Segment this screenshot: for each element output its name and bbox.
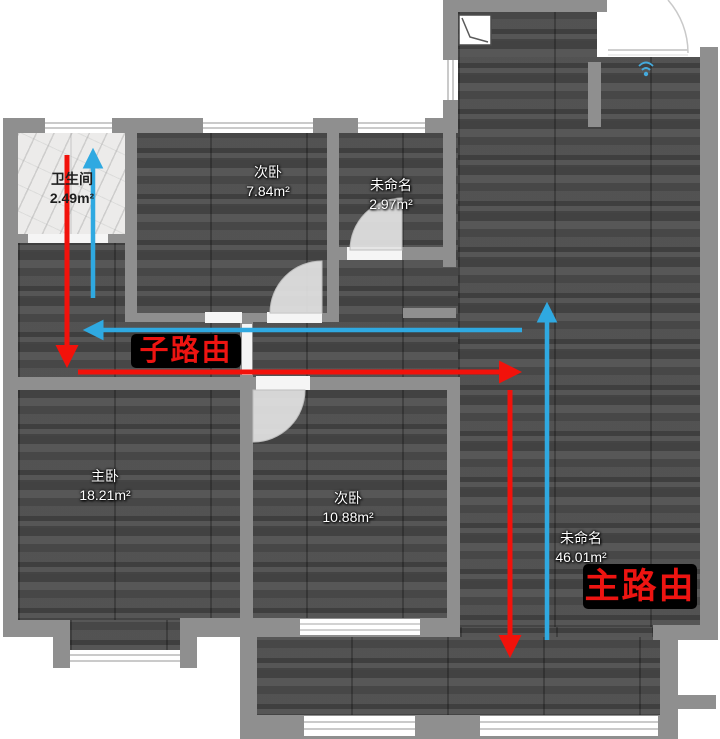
sub-route-label: 子路由 xyxy=(131,334,241,368)
room-name: 未命名 xyxy=(555,529,606,548)
room-area: 18.21m² xyxy=(79,486,130,505)
room-label-bathroom: 卫生间 2.49m² xyxy=(50,170,94,208)
bedroom-bottom-door-arc xyxy=(253,390,305,442)
router-marker-icon xyxy=(639,63,653,77)
room-name: 主卧 xyxy=(79,467,130,486)
room-name: 次卧 xyxy=(322,489,373,508)
window-bay xyxy=(70,650,180,668)
room-label-unnamed-small: 未命名 2.97m² xyxy=(369,176,413,214)
room-area: 7.84m² xyxy=(246,182,290,201)
bedroom-bottom-door-opening xyxy=(256,376,310,390)
entrance-door xyxy=(602,0,698,57)
window-bedroom-bottom xyxy=(300,619,420,635)
floor-plan: 卫生间 2.49m² 次卧 7.84m² 未命名 2.97m² 主卧 18.21… xyxy=(0,0,720,739)
room-name: 卫生间 xyxy=(50,170,94,189)
room-name: 未命名 xyxy=(369,176,413,195)
window-bathroom-top xyxy=(45,118,112,133)
bedroom-top-door-opening xyxy=(267,312,322,323)
window-unnamed-small-top xyxy=(358,118,425,133)
window-bedroom-top xyxy=(203,118,313,133)
hall-door-opening xyxy=(205,312,242,323)
room-area: 2.97m² xyxy=(369,195,413,214)
bedroom-top-door-arc xyxy=(270,261,322,313)
room-label-unnamed-large: 未命名 46.01m² xyxy=(555,529,606,567)
window-bottom-2 xyxy=(480,716,658,736)
plan-overlay xyxy=(0,0,720,739)
room-area: 10.88m² xyxy=(322,508,373,527)
room-label-master-bedroom: 主卧 18.21m² xyxy=(79,467,130,505)
window-bottom-1 xyxy=(304,716,415,736)
room-area: 2.49m² xyxy=(50,189,94,208)
room-label-bedroom-bottom: 次卧 10.88m² xyxy=(322,489,373,527)
window-tower-left xyxy=(443,60,458,100)
duct-symbol-icon xyxy=(459,15,491,45)
main-route-label: 主路由 xyxy=(583,564,697,609)
room-label-bedroom-top: 次卧 7.84m² xyxy=(246,163,290,201)
room-name: 次卧 xyxy=(246,163,290,182)
